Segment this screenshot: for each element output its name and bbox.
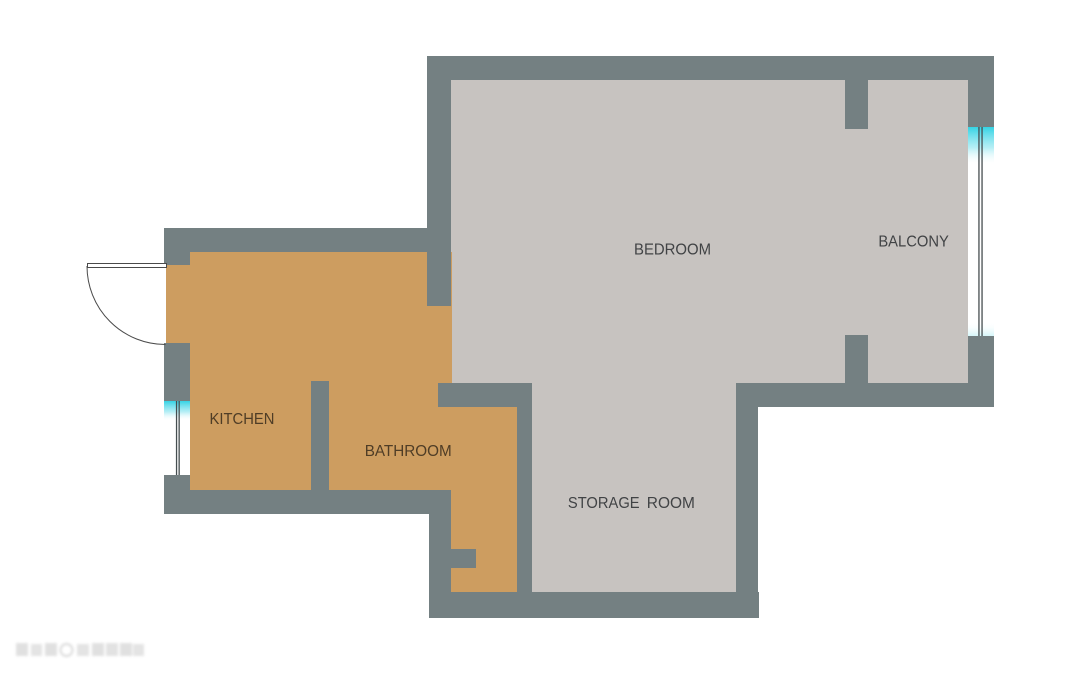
svg-text:BALCONY: BALCONY (878, 234, 949, 251)
svg-text:KITCHEN: KITCHEN (210, 411, 275, 428)
svg-text:STORAGE: STORAGE (568, 495, 640, 512)
svg-text:BATHROOM: BATHROOM (365, 443, 452, 460)
svg-text:BEDROOM: BEDROOM (634, 242, 711, 259)
svg-text:ROOM: ROOM (647, 495, 695, 512)
